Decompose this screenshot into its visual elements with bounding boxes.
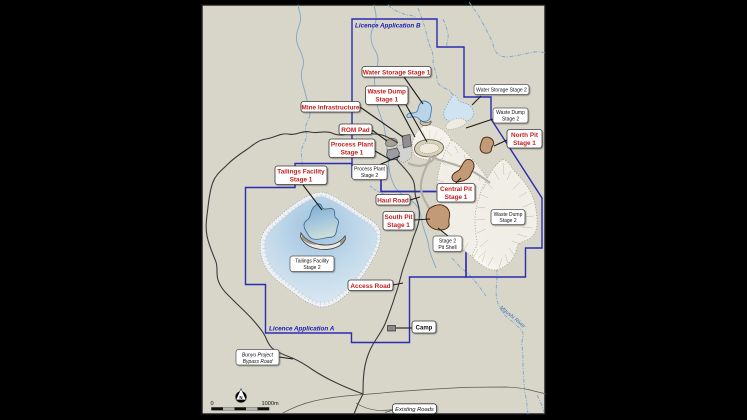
- svg-text:Tailings Facility: Tailings Facility: [277, 169, 325, 176]
- svg-text:Tailings Facility: Tailings Facility: [295, 258, 329, 264]
- svg-text:South Pit: South Pit: [384, 214, 413, 221]
- svg-text:ROM Pad: ROM Pad: [341, 127, 370, 134]
- svg-text:Bunyu Project: Bunyu Project: [242, 352, 274, 358]
- svg-text:North Pit: North Pit: [511, 132, 539, 139]
- svg-text:Haul Road: Haul Road: [377, 197, 409, 204]
- svg-text:Pit Shell: Pit Shell: [438, 245, 456, 251]
- svg-text:Mine Infrastructure: Mine Infrastructure: [302, 104, 360, 111]
- svg-text:Stage 2: Stage 2: [361, 173, 378, 179]
- svg-text:Camp: Camp: [416, 325, 433, 331]
- svg-text:Stage 2: Stage 2: [303, 265, 320, 271]
- svg-text:Process Plant: Process Plant: [331, 142, 374, 149]
- svg-text:Licence Application A: Licence Application A: [269, 326, 335, 333]
- svg-text:Stage 2: Stage 2: [502, 117, 519, 123]
- svg-text:Stage 1: Stage 1: [445, 194, 468, 201]
- svg-text:N: N: [239, 395, 242, 400]
- svg-text:0: 0: [211, 401, 214, 407]
- svg-text:Stage 1: Stage 1: [513, 140, 536, 147]
- svg-text:Existing Roads: Existing Roads: [395, 407, 434, 413]
- svg-text:1000m: 1000m: [262, 401, 279, 407]
- svg-text:Stage 1: Stage 1: [387, 222, 410, 229]
- svg-text:Stage 1: Stage 1: [341, 149, 364, 156]
- svg-text:Water Storage Stage 2: Water Storage Stage 2: [476, 88, 527, 94]
- svg-text:Stage 2: Stage 2: [439, 238, 456, 244]
- svg-text:Bypass Road: Bypass Road: [243, 359, 273, 365]
- svg-text:Licence Application B: Licence Application B: [355, 23, 421, 30]
- svg-text:Waste Dump: Waste Dump: [496, 110, 525, 116]
- svg-text:Stage 1: Stage 1: [290, 176, 313, 183]
- svg-text:Waste Dump: Waste Dump: [494, 212, 523, 218]
- svg-text:Process Plant: Process Plant: [354, 167, 385, 173]
- svg-text:Waste Dump: Waste Dump: [367, 89, 406, 96]
- svg-text:Stage 2: Stage 2: [499, 218, 516, 224]
- svg-text:Central Pit: Central Pit: [440, 186, 473, 193]
- svg-text:Water Storage Stage 1: Water Storage Stage 1: [363, 69, 431, 76]
- svg-text:Stage 1: Stage 1: [375, 96, 398, 103]
- svg-text:Access Road: Access Road: [350, 283, 390, 290]
